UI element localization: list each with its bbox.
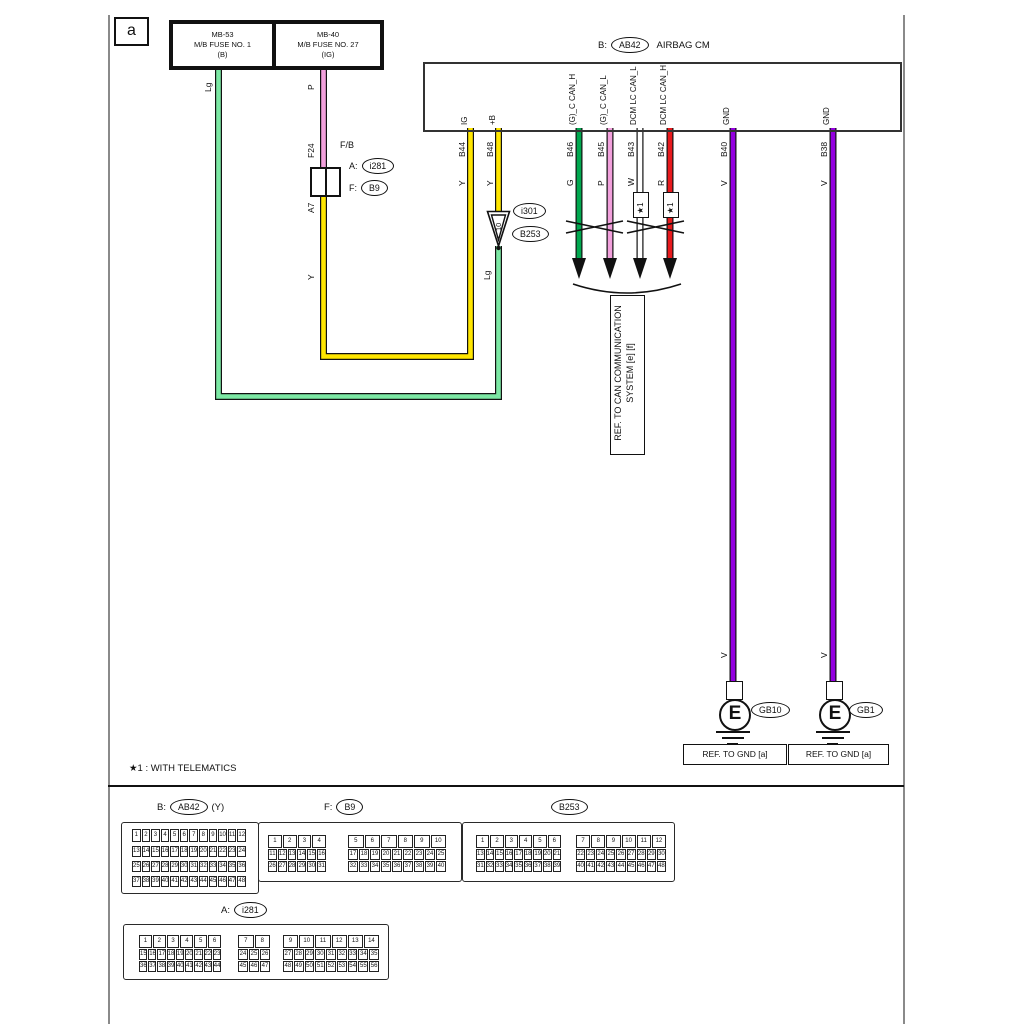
pin-cell: 43	[606, 861, 615, 872]
pin-cell: 30	[180, 861, 189, 872]
pin-signal-b43: DCM LC CAN_L	[629, 66, 639, 125]
pin-cell: 42	[180, 876, 189, 887]
pin-cell: 38	[142, 876, 151, 887]
wire-y-fb-fill	[324, 128, 471, 357]
connector-label-b9: F: B9	[324, 799, 363, 815]
pin-cell: 35	[228, 861, 237, 872]
joint-ref-i301: i301	[513, 203, 546, 219]
connector-b253-block-left: 1234561314151617181920213132333435363738…	[476, 835, 561, 872]
wire-color-b46: G	[565, 179, 575, 186]
pin-row: 252627282930313233343536	[132, 861, 246, 872]
pin-row: 789101112	[576, 835, 666, 848]
pin-cell: 43	[189, 876, 198, 887]
wire-color-b43: W	[626, 178, 636, 186]
pin-cell: 49	[294, 961, 304, 972]
wire-color-b40-lower: V	[719, 652, 729, 658]
pin-row: 484950515253545556	[283, 961, 379, 972]
fb-title: F/B	[340, 140, 354, 150]
wire-color-b40: V	[719, 180, 729, 186]
pin-number-b44: B44	[457, 142, 467, 157]
pin-cell: 30	[657, 849, 666, 860]
pin-row: 1234	[268, 835, 326, 848]
pin-cell: 29	[647, 849, 656, 860]
pin-cell: 1	[476, 835, 489, 848]
pin-cell: 3	[505, 835, 518, 848]
pin-cell: 4	[180, 935, 193, 948]
pin-cell: 32	[486, 861, 495, 872]
fuse-rating: (IG)	[276, 50, 380, 60]
pin-cell: 7	[381, 835, 397, 848]
pin-cell: 53	[337, 961, 347, 972]
pin-row: 222324252627282930	[576, 849, 666, 860]
connector-b9-drawing: 1234111213141516262728293031 56789101718…	[258, 822, 462, 882]
pin-cell: 52	[326, 961, 336, 972]
can-group-arc	[573, 284, 681, 293]
pin-cell: 18	[524, 849, 533, 860]
pin-cell: 1	[139, 935, 152, 948]
pin-row: 5678910	[348, 835, 446, 848]
pin-cell: 35	[514, 861, 523, 872]
wire-color-lg: Lg	[203, 83, 213, 92]
fb-ref-i281: i281	[362, 158, 395, 174]
fuse-id: MB-40	[276, 30, 380, 40]
pin-row: 272829303132333435	[283, 949, 379, 960]
pin-cell: 13	[288, 849, 297, 860]
pin-cell: 28	[288, 861, 297, 872]
pin-cell: 36	[392, 861, 402, 872]
pin-cell: 26	[260, 949, 270, 960]
pin-row: 131415161718192021222324	[132, 846, 246, 857]
can-ref-line1: REF. TO CAN COMMUNICATION	[612, 295, 624, 451]
pin-cell: 25	[436, 849, 446, 860]
pin-cell: 16	[161, 846, 170, 857]
pin-cell: 21	[392, 849, 402, 860]
ground-hatch-4	[816, 731, 850, 733]
ground-hatch-1	[716, 731, 750, 733]
cm-connector-ref: AB42	[611, 37, 649, 53]
connector-label-ab42: B: AB42 (Y)	[157, 799, 224, 815]
twisted-pair-crossing-2	[627, 221, 684, 233]
pin-cell: 24	[238, 949, 248, 960]
pin-cell: 31	[317, 861, 326, 872]
can-ref-line2: SYSTEM [e] [f]	[624, 295, 636, 451]
pin-row: 123456	[476, 835, 561, 848]
pin-cell: 27	[151, 861, 160, 872]
pin-cell: 2	[142, 829, 151, 842]
connector-i281-block-left: 1234561516171819202122233637383940414243…	[139, 935, 221, 972]
fb-out-pin: A7	[306, 203, 316, 213]
pin-cell: 36	[524, 861, 533, 872]
pin-cell: 10	[299, 935, 314, 948]
pin-cell: 12	[652, 835, 666, 848]
joint-dot	[496, 246, 500, 250]
pin-cell: 42	[194, 961, 202, 972]
pin-cell: 17	[348, 849, 358, 860]
pin-cell: 17	[170, 846, 179, 857]
fuse-name: M/B FUSE NO. 1	[173, 40, 272, 50]
wiring-diagram-page: a	[0, 0, 1024, 1024]
pin-cell: 27	[283, 949, 293, 960]
pin-cell: 17	[514, 849, 523, 860]
pin-cell: 10	[431, 835, 447, 848]
connector-label-b253: B253	[551, 799, 588, 815]
pin-signal-b42: DCM LC CAN_H	[659, 65, 669, 125]
pin-cell: 25	[606, 849, 615, 860]
wire-color-lg-joint: Lg	[482, 271, 492, 280]
joint-number: 10	[494, 223, 504, 231]
pin-cell: 18	[359, 849, 369, 860]
pin-cell: 10	[622, 835, 636, 848]
fb-row-f: F: B9	[349, 180, 388, 196]
pin-cell: 26	[268, 861, 277, 872]
fuse-id: MB-53	[173, 30, 272, 40]
pin-cell: 8	[255, 935, 271, 948]
pin-cell: 39	[167, 961, 175, 972]
pin-cell: 7	[576, 835, 590, 848]
cm-prefix: B:	[598, 40, 607, 51]
ground-caption-gb1: REF. TO GND [a]	[788, 744, 889, 765]
wire-color-p: P	[306, 84, 316, 90]
section-divider	[108, 785, 904, 787]
pin-cell: 8	[591, 835, 605, 848]
pin-signal-b45: (G)_C CAN_L	[599, 75, 609, 125]
pin-cell: 20	[199, 846, 208, 857]
connector-label-i281: A: i281	[221, 902, 267, 918]
pin-cell: 27	[278, 861, 287, 872]
fb-connector-divider	[325, 169, 327, 195]
pin-cell: 19	[370, 849, 380, 860]
section-label-box: a	[114, 17, 149, 46]
connector-prefix: F:	[324, 802, 332, 813]
pin-row: 363738394041424344	[139, 961, 221, 972]
joint-ref-b253: B253	[512, 226, 549, 242]
pin-number-b42: B42	[656, 142, 666, 157]
pin-cell: 6	[208, 935, 221, 948]
fuse-rating: (B)	[173, 50, 272, 60]
pin-cell: 32	[337, 949, 347, 960]
pin-cell: 9	[606, 835, 620, 848]
pin-cell: 15	[307, 849, 316, 860]
pin-cell: 16	[505, 849, 514, 860]
pin-row: 313233343536373839	[476, 861, 561, 872]
pin-cell: 14	[364, 935, 379, 948]
ground-ref-gb1: GB1	[849, 702, 883, 718]
pin-cell: 38	[414, 861, 424, 872]
pin-cell: 45	[238, 961, 248, 972]
fb-fuse-pin: F24	[306, 143, 316, 158]
ground-hatch-2	[722, 737, 744, 739]
pin-cell: 20	[185, 949, 193, 960]
section-label: a	[127, 22, 136, 39]
ground-connector-square-gb10	[726, 681, 743, 700]
pin-cell: 33	[348, 949, 358, 960]
pin-cell: 44	[616, 861, 625, 872]
pin-cell: 47	[228, 876, 237, 887]
pin-cell: 14	[297, 849, 306, 860]
pin-cell: 23	[228, 846, 237, 857]
connector-i281-block-right: 9101112131427282930313233343548495051525…	[283, 935, 379, 972]
pin-cell: 15	[495, 849, 504, 860]
pin-cell: 1	[132, 829, 141, 842]
wire-color-y-fb: Y	[306, 274, 316, 280]
pin-cell: 16	[317, 849, 326, 860]
pin-cell: 6	[180, 829, 189, 842]
pin-cell: 31	[326, 949, 336, 960]
pin-cell: 50	[305, 961, 315, 972]
wire-color-b38-lower: V	[819, 652, 829, 658]
pin-cell: 46	[637, 861, 646, 872]
pin-cell: 19	[176, 949, 184, 960]
pin-cell: 46	[249, 961, 259, 972]
pin-cell: 27	[627, 849, 636, 860]
connector-b9-block-right: 5678910171819202122232425323334353637383…	[348, 835, 446, 872]
pin-cell: 6	[365, 835, 381, 848]
pin-cell: 23	[213, 949, 221, 960]
pin-cell: 45	[627, 861, 636, 872]
ground-hatch-5	[822, 737, 844, 739]
pin-cell: 3	[167, 935, 180, 948]
connector-ref-ab42: AB42	[170, 799, 208, 815]
pin-cell: 22	[403, 849, 413, 860]
connector-prefix: A:	[221, 905, 230, 916]
pin-cell: 41	[185, 961, 193, 972]
connector-ab42-block: 1234567891011121314151617181920212223242…	[132, 829, 246, 887]
pin-cell: 36	[139, 961, 147, 972]
pin-cell: 37	[132, 876, 141, 887]
pin-cell: 38	[543, 861, 552, 872]
pin-signal-b38: GND	[822, 107, 832, 125]
pin-cell: 45	[209, 876, 218, 887]
pin-cell: 18	[167, 949, 175, 960]
connector-prefix: B:	[157, 802, 166, 813]
fb-row-a-prefix: A:	[349, 161, 358, 171]
pin-cell: 48	[237, 876, 246, 887]
pin-row: 123456	[139, 935, 221, 948]
pin-cell: 13	[476, 849, 485, 860]
pin-row: 404142434445464748	[576, 861, 666, 872]
pin-cell: 56	[369, 961, 379, 972]
pin-cell: 23	[414, 849, 424, 860]
connector-ref-b253: B253	[551, 799, 588, 815]
fb-row-f-prefix: F:	[349, 183, 357, 193]
pin-row: 131415161718192021	[476, 849, 561, 860]
pin-signal-b48: +B	[488, 115, 498, 125]
pin-number-b45: B45	[596, 142, 606, 157]
pin-cell: 29	[297, 861, 306, 872]
pin-signal-b44: IG	[460, 117, 470, 125]
fuse-name: M/B FUSE NO. 27	[276, 40, 380, 50]
pin-cell: 39	[553, 861, 562, 872]
pin-cell: 4	[312, 835, 326, 848]
pin-cell: 9	[209, 829, 218, 842]
pin-cell: 19	[189, 846, 198, 857]
pin-cell: 11	[637, 835, 651, 848]
pin-cell: 32	[348, 861, 358, 872]
fuse-box-mb40: MB-40 M/B FUSE NO. 27 (IG)	[272, 20, 384, 70]
pin-cell: 28	[161, 861, 170, 872]
pin-cell: 12	[278, 849, 287, 860]
pin-cell: 12	[332, 935, 347, 948]
pin-row: 78	[238, 935, 270, 948]
can-ref-text: REF. TO CAN COMMUNICATION SYSTEM [e] [f]	[612, 295, 636, 451]
pin-row: 373839404142434445464748	[132, 876, 246, 887]
pin-cell: 32	[199, 861, 208, 872]
pin-cell: 34	[358, 949, 368, 960]
pin-row: 171819202122232425	[348, 849, 446, 860]
wire-color-b38: V	[819, 180, 829, 186]
pin-cell: 14	[486, 849, 495, 860]
connector-ref-b9: B9	[336, 799, 363, 815]
pin-cell: 14	[142, 846, 151, 857]
pin-cell: 33	[209, 861, 218, 872]
pin-cell: 11	[315, 935, 330, 948]
pin-cell: 29	[170, 861, 179, 872]
pin-cell: 33	[359, 861, 369, 872]
pin-cell: 40	[576, 861, 585, 872]
pin-row: 242526	[238, 949, 270, 960]
pin-cell: 34	[218, 861, 227, 872]
connector-b253-block-right: 7891011122223242526272829304041424344454…	[576, 835, 666, 872]
pin-number-b40: B40	[719, 142, 729, 157]
pin-cell: 19	[533, 849, 542, 860]
pin-cell: 28	[637, 849, 646, 860]
connector-i281-drawing: 1234561516171819202122233637383940414243…	[123, 924, 389, 980]
pin-cell: 26	[616, 849, 625, 860]
pin-cell: 43	[204, 961, 212, 972]
pin-cell: 15	[151, 846, 160, 857]
pin-cell: 24	[425, 849, 435, 860]
pin-cell: 40	[176, 961, 184, 972]
ground-caption-gb10: REF. TO GND [a]	[683, 744, 787, 765]
pin-cell: 40	[436, 861, 446, 872]
pin-cell: 20	[381, 849, 391, 860]
ground-symbol-gb1: E	[819, 699, 851, 731]
wire-color-b42: R	[656, 180, 666, 186]
pin-cell: 10	[218, 829, 227, 842]
ground-letter: E	[829, 703, 842, 724]
pin-row: 111213141516	[268, 849, 326, 860]
pin-cell: 31	[476, 861, 485, 872]
ground-ref-gb10: GB10	[751, 702, 790, 718]
connector-i281-block-middle: 78242526454647	[238, 935, 270, 972]
pin-cell: 12	[237, 829, 246, 842]
pin-cell: 37	[403, 861, 413, 872]
arrow-b46	[572, 258, 586, 279]
pin-cell: 48	[283, 961, 293, 972]
pin-cell: 31	[189, 861, 198, 872]
pin-cell: 17	[157, 949, 165, 960]
pin-number-b38: B38	[819, 142, 829, 157]
pin-cell: 7	[238, 935, 254, 948]
pin-cell: 22	[204, 949, 212, 960]
pin-cell: 1	[268, 835, 282, 848]
connector-ref-i281: i281	[234, 902, 267, 918]
pin-number-b46: B46	[565, 142, 575, 157]
pin-cell: 55	[358, 961, 368, 972]
pin-cell: 5	[194, 935, 207, 948]
pin-cell: 3	[298, 835, 312, 848]
pin-cell: 21	[209, 846, 218, 857]
pin-cell: 33	[495, 861, 504, 872]
pin-cell: 9	[414, 835, 430, 848]
pin-row: 123456789101112	[132, 829, 246, 842]
fuse-box-mb53: MB-53 M/B FUSE NO. 1 (B)	[169, 20, 276, 70]
pin-cell: 29	[305, 949, 315, 960]
pin-cell: 9	[283, 935, 298, 948]
pin-cell: 30	[315, 949, 325, 960]
pin-cell: 40	[161, 876, 170, 887]
pin-cell: 37	[148, 961, 156, 972]
pin-cell: 5	[533, 835, 546, 848]
pin-cell: 44	[213, 961, 221, 972]
pin-cell: 3	[151, 829, 160, 842]
pin-cell: 28	[294, 949, 304, 960]
pin-cell: 41	[586, 861, 595, 872]
arrow-b42	[663, 258, 677, 279]
pin-cell: 25	[249, 949, 259, 960]
pin-cell: 37	[533, 861, 542, 872]
pin-cell: 21	[553, 849, 562, 860]
pin-cell: 34	[370, 861, 380, 872]
pin-row: 323334353637383940	[348, 861, 446, 872]
pin-signal-b46: (G)_C CAN_H	[568, 74, 578, 125]
pin-cell: 4	[161, 829, 170, 842]
pin-number-b48: B48	[485, 142, 495, 157]
pin-cell: 5	[348, 835, 364, 848]
arrow-b45	[603, 258, 617, 279]
pin-cell: 18	[180, 846, 189, 857]
pin-cell: 22	[576, 849, 585, 860]
pin-cell: 47	[260, 961, 270, 972]
pin-cell: 39	[425, 861, 435, 872]
pin-row: 262728293031	[268, 861, 326, 872]
pin-cell: 7	[189, 829, 198, 842]
connector-b9-block-left: 1234111213141516262728293031	[268, 835, 326, 872]
pin-cell: 2	[283, 835, 297, 848]
pin-cell: 36	[237, 861, 246, 872]
fb-ref-b9: B9	[361, 180, 388, 196]
wire-color-b44: Y	[457, 180, 467, 186]
pin-cell: 35	[381, 861, 391, 872]
pin-cell: 16	[148, 949, 156, 960]
pin-cell: 22	[218, 846, 227, 857]
pin-cell: 24	[596, 849, 605, 860]
pin-cell: 4	[519, 835, 532, 848]
pin-cell: 20	[543, 849, 552, 860]
pin-cell: 44	[199, 876, 208, 887]
pin-cell: 25	[132, 861, 141, 872]
option-note-b43: ★1	[636, 202, 646, 214]
ground-connector-square-gb1	[826, 681, 843, 700]
pin-cell: 21	[194, 949, 202, 960]
pin-cell: 47	[647, 861, 656, 872]
pin-cell: 23	[586, 849, 595, 860]
connector-suffix: (Y)	[212, 802, 225, 813]
pin-cell: 38	[157, 961, 165, 972]
ground-letter: E	[729, 703, 742, 724]
pin-cell: 5	[170, 829, 179, 842]
wire-color-b48: Y	[485, 180, 495, 186]
fb-row-a: A: i281	[349, 158, 394, 174]
fb-connector-box	[310, 167, 341, 197]
pin-cell: 8	[398, 835, 414, 848]
pin-cell: 46	[218, 876, 227, 887]
wire-color-b45: P	[596, 180, 606, 186]
pin-cell: 26	[142, 861, 151, 872]
pin-cell: 42	[596, 861, 605, 872]
pin-cell: 54	[348, 961, 358, 972]
option-note-b42: ★1	[666, 202, 676, 214]
